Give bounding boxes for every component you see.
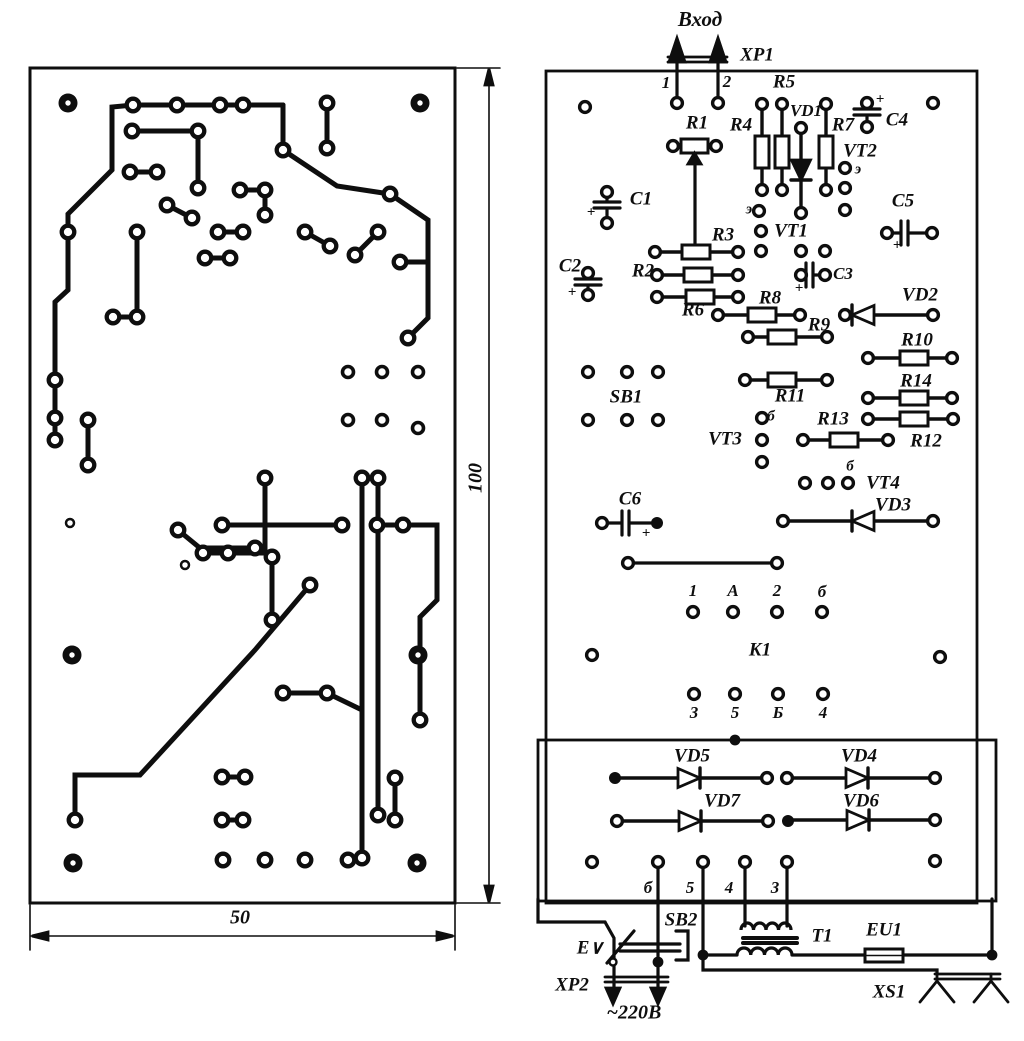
component-pad (672, 98, 683, 109)
component-label: Вход (677, 7, 722, 31)
resistor-body (755, 136, 769, 168)
component-pad (668, 141, 679, 152)
solder-pad (214, 99, 227, 112)
solder-pad (239, 771, 252, 784)
component-pad (796, 270, 807, 281)
component-pad (795, 310, 806, 321)
mounting-hole-center (415, 652, 420, 657)
component-pad (821, 185, 832, 196)
component-label: + (642, 525, 651, 541)
component-pad (757, 413, 768, 424)
pcb-layout-diagram: ВходХР112R1R4R5VD1R7C4+VT2эC5+C1+эVT1R3C… (0, 0, 1024, 1041)
component-label: + (893, 237, 902, 253)
solder-pad (259, 472, 272, 485)
component-pad (800, 478, 811, 489)
solder-pad (192, 182, 205, 195)
pin-tip (610, 959, 617, 966)
component-pad (820, 270, 831, 281)
component-label: 4 (818, 703, 828, 722)
component-pad (728, 607, 739, 618)
component-label: VD2 (902, 284, 938, 305)
component-label: 4 (724, 878, 734, 897)
component-pad (733, 292, 744, 303)
component-pad (756, 226, 767, 237)
component-label: Е∨ (576, 937, 605, 958)
solder-pad (49, 434, 62, 447)
component-pad (762, 773, 773, 784)
resistor-body (682, 245, 710, 259)
solder-pad (186, 212, 199, 225)
component-pad (740, 375, 751, 386)
component-pad (689, 689, 700, 700)
resistor-body (775, 136, 789, 168)
component-label: 50 (230, 907, 250, 929)
component-pad (713, 310, 724, 321)
free-pad (413, 367, 424, 378)
component-label: э (854, 161, 861, 177)
resistor-body (768, 330, 796, 344)
component-label: R11 (774, 385, 806, 406)
component-pad (602, 187, 613, 198)
solder-pad (259, 209, 272, 222)
component-label: 2 (772, 581, 782, 600)
component-pad (773, 689, 784, 700)
solder-pad (234, 184, 247, 197)
component-label: R9 (807, 314, 831, 335)
component-pad (757, 457, 768, 468)
component-pad (947, 353, 958, 364)
solder-pad (321, 142, 334, 155)
component-pad (822, 375, 833, 386)
component-label: ХР2 (554, 974, 589, 995)
small-hole (66, 519, 74, 527)
solder-pad (397, 519, 410, 532)
component-pad (650, 247, 661, 258)
component-label: 100 (465, 463, 487, 493)
component-label: VT1 (774, 220, 808, 241)
solder-pad (372, 809, 385, 822)
component-pad (622, 367, 633, 378)
solder-pad (371, 519, 384, 532)
component-pad (587, 650, 598, 661)
component-label: ХР1 (739, 44, 774, 65)
component-pad (840, 163, 851, 174)
solder-pad (171, 99, 184, 112)
scanned-pcb-figure: ВходХР112R1R4R5VD1R7C4+VT2эC5+C1+эVT1R3C… (0, 0, 1024, 1041)
component-label: 5 (731, 703, 740, 722)
solder-pad (69, 814, 82, 827)
component-label: C5 (892, 190, 915, 211)
component-label: VD1 (790, 101, 822, 120)
solder-pad (389, 772, 402, 785)
free-pad (413, 423, 424, 434)
solder-pad (237, 814, 250, 827)
component-pad (777, 99, 788, 110)
component-pad (597, 518, 608, 529)
component-label: C1 (630, 188, 652, 209)
component-label: VD3 (875, 494, 911, 515)
component-label: R14 (899, 370, 932, 391)
component-label: VD4 (841, 745, 877, 766)
component-pad (935, 652, 946, 663)
component-label: VD7 (704, 790, 741, 811)
component-label: VD5 (674, 745, 710, 766)
component-label: R3 (711, 224, 734, 245)
component-pad (778, 516, 789, 527)
small-hole (181, 561, 189, 569)
solder-pad (299, 854, 312, 867)
component-pad (821, 99, 832, 110)
component-label: R6 (681, 299, 705, 320)
component-pad (587, 857, 598, 868)
component-pad (763, 816, 774, 827)
component-pad (798, 435, 809, 446)
component-pad (757, 435, 768, 446)
free-pad (343, 367, 354, 378)
component-label: C4 (886, 109, 908, 130)
component-pad (688, 607, 699, 618)
solder-pad (304, 579, 317, 592)
resistor-body (900, 391, 928, 405)
resistor-body (900, 412, 928, 426)
component-pad (782, 773, 793, 784)
component-label: VT2 (843, 140, 877, 161)
solder-pad (216, 814, 229, 827)
component-pad (862, 98, 873, 109)
component-pad (777, 185, 788, 196)
component-label: А (726, 581, 738, 600)
component-pad (733, 247, 744, 258)
component-label: + (587, 204, 596, 220)
solder-pad (259, 184, 272, 197)
component-label: SB2 (665, 909, 698, 930)
component-label: EU1 (865, 919, 902, 940)
solder-pad (389, 814, 402, 827)
solder-pad (217, 854, 230, 867)
component-pad (743, 332, 754, 343)
solder-pad (402, 332, 415, 345)
component-pad (612, 816, 623, 827)
component-pad (863, 393, 874, 404)
resistor-body (748, 308, 776, 322)
mounting-hole-center (417, 100, 422, 105)
component-pad (863, 414, 874, 425)
solder-pad (266, 551, 279, 564)
component-label: VD6 (843, 790, 879, 811)
solder-pad (62, 226, 75, 239)
free-pad (377, 367, 388, 378)
component-pad (818, 689, 829, 700)
junction-dot (730, 735, 741, 746)
solder-pad (237, 99, 250, 112)
component-label: + (568, 284, 577, 300)
junction-dot (653, 957, 664, 968)
component-pad (583, 290, 594, 301)
solder-pad (216, 519, 229, 532)
component-pad (698, 857, 709, 868)
junction-dot (698, 950, 709, 961)
component-pad (882, 228, 893, 239)
solder-pad (299, 226, 312, 239)
solder-pad (394, 256, 407, 269)
resistor-body (819, 136, 833, 168)
component-pad (927, 228, 938, 239)
solder-pad (199, 252, 212, 265)
component-pad (602, 218, 613, 229)
component-pad (583, 268, 594, 279)
mounting-hole-center (70, 860, 75, 865)
component-pad (730, 689, 741, 700)
solder-pad (127, 99, 140, 112)
component-pad (580, 102, 591, 113)
component-pad (756, 246, 767, 257)
component-pad (948, 414, 959, 425)
component-pad (863, 353, 874, 364)
filled-pad (651, 517, 663, 529)
component-label: э (745, 201, 752, 217)
solder-pad (249, 542, 262, 555)
component-label: R1 (685, 112, 708, 133)
component-label: R13 (816, 408, 849, 429)
component-pad (947, 393, 958, 404)
solder-pad (384, 188, 397, 201)
solder-pad (49, 412, 62, 425)
solder-pad (336, 519, 349, 532)
solder-pad (277, 144, 290, 157)
component-label: R7 (831, 114, 856, 135)
component-pad (622, 415, 633, 426)
component-pad (772, 558, 783, 569)
solder-pad (124, 166, 137, 179)
solder-pad (259, 854, 272, 867)
solder-pad (372, 472, 385, 485)
free-pad (377, 415, 388, 426)
component-pad (796, 246, 807, 257)
solder-pad (212, 226, 225, 239)
component-pad (583, 415, 594, 426)
solder-pad (82, 459, 95, 472)
resistor-body (900, 351, 928, 365)
solder-pad (372, 226, 385, 239)
component-label: + (876, 91, 885, 107)
component-label: R8 (758, 287, 782, 308)
component-pad (820, 246, 831, 257)
component-pad (772, 607, 783, 618)
component-pad (928, 516, 939, 527)
mounting-hole-center (69, 652, 74, 657)
solder-pad (107, 311, 120, 324)
component-label: б (767, 408, 775, 424)
component-label: C3 (833, 264, 853, 283)
component-pad (840, 183, 851, 194)
solder-pad (82, 414, 95, 427)
component-label: T1 (811, 925, 832, 946)
component-label: 1 (662, 73, 671, 92)
component-label: R4 (729, 114, 752, 135)
component-label: C2 (559, 255, 582, 276)
component-pad (653, 857, 664, 868)
component-pad (862, 122, 873, 133)
component-label: C6 (619, 488, 642, 509)
component-pad (930, 773, 941, 784)
component-label: VT4 (866, 472, 900, 493)
solder-pad (266, 614, 279, 627)
component-pad (711, 141, 722, 152)
component-pad (713, 98, 724, 109)
component-pad (653, 415, 664, 426)
component-pad (843, 478, 854, 489)
component-label: R12 (909, 430, 942, 451)
solder-pad (222, 547, 235, 560)
component-label: ~220В (607, 1002, 662, 1024)
component-pad (817, 607, 828, 618)
component-pad (583, 367, 594, 378)
component-pad (652, 292, 663, 303)
component-pad (930, 856, 941, 867)
resistor-body (830, 433, 858, 447)
component-pad (883, 435, 894, 446)
solder-pad (321, 97, 334, 110)
solder-pad (151, 166, 164, 179)
component-pad (754, 206, 765, 217)
component-label: R5 (772, 71, 796, 92)
solder-pad (131, 226, 144, 239)
component-label: + (795, 280, 804, 296)
component-pad (740, 857, 751, 868)
component-label: K1 (748, 639, 771, 660)
component-pad (733, 270, 744, 281)
solder-pad (192, 125, 205, 138)
filled-pad (782, 815, 794, 827)
component-label: SB1 (610, 386, 643, 407)
component-label: 3 (770, 878, 780, 897)
solder-pad (49, 374, 62, 387)
solder-pad (356, 852, 369, 865)
component-label: 5 (686, 878, 695, 897)
solder-pad (349, 249, 362, 262)
component-label: Б (772, 703, 784, 722)
solder-pad (161, 199, 174, 212)
component-pad (796, 208, 807, 219)
solder-pad (414, 714, 427, 727)
solder-pad (237, 226, 250, 239)
solder-pad (224, 252, 237, 265)
junction-dot (987, 950, 998, 961)
solder-pad (131, 311, 144, 324)
component-pad (757, 99, 768, 110)
component-pad (823, 478, 834, 489)
mounting-hole-center (65, 100, 70, 105)
component-label: VT3 (708, 428, 742, 449)
component-label: R2 (631, 260, 655, 281)
component-label: XS1 (872, 981, 906, 1002)
solder-pad (324, 240, 337, 253)
solder-pad (342, 854, 355, 867)
component-pad (840, 205, 851, 216)
component-pad (653, 367, 664, 378)
component-pad (623, 558, 634, 569)
component-label: R10 (900, 329, 933, 350)
component-pad (928, 98, 939, 109)
solder-pad (277, 687, 290, 700)
solder-pad (216, 771, 229, 784)
solder-pad (321, 687, 334, 700)
component-pad (840, 310, 851, 321)
solder-pad (126, 125, 139, 138)
component-pad (782, 857, 793, 868)
mounting-hole-center (414, 860, 419, 865)
solder-pad (197, 547, 210, 560)
component-pad (757, 185, 768, 196)
component-pad (930, 815, 941, 826)
filled-pad (609, 772, 621, 784)
component-label: б (846, 458, 854, 474)
component-label: 1 (689, 581, 698, 600)
component-pad (928, 310, 939, 321)
resistor-body (684, 268, 712, 282)
solder-pad (172, 524, 185, 537)
free-pad (343, 415, 354, 426)
component-pad (796, 123, 807, 134)
component-label: 2 (722, 72, 732, 91)
component-label: 3 (689, 703, 699, 722)
solder-pad (356, 472, 369, 485)
